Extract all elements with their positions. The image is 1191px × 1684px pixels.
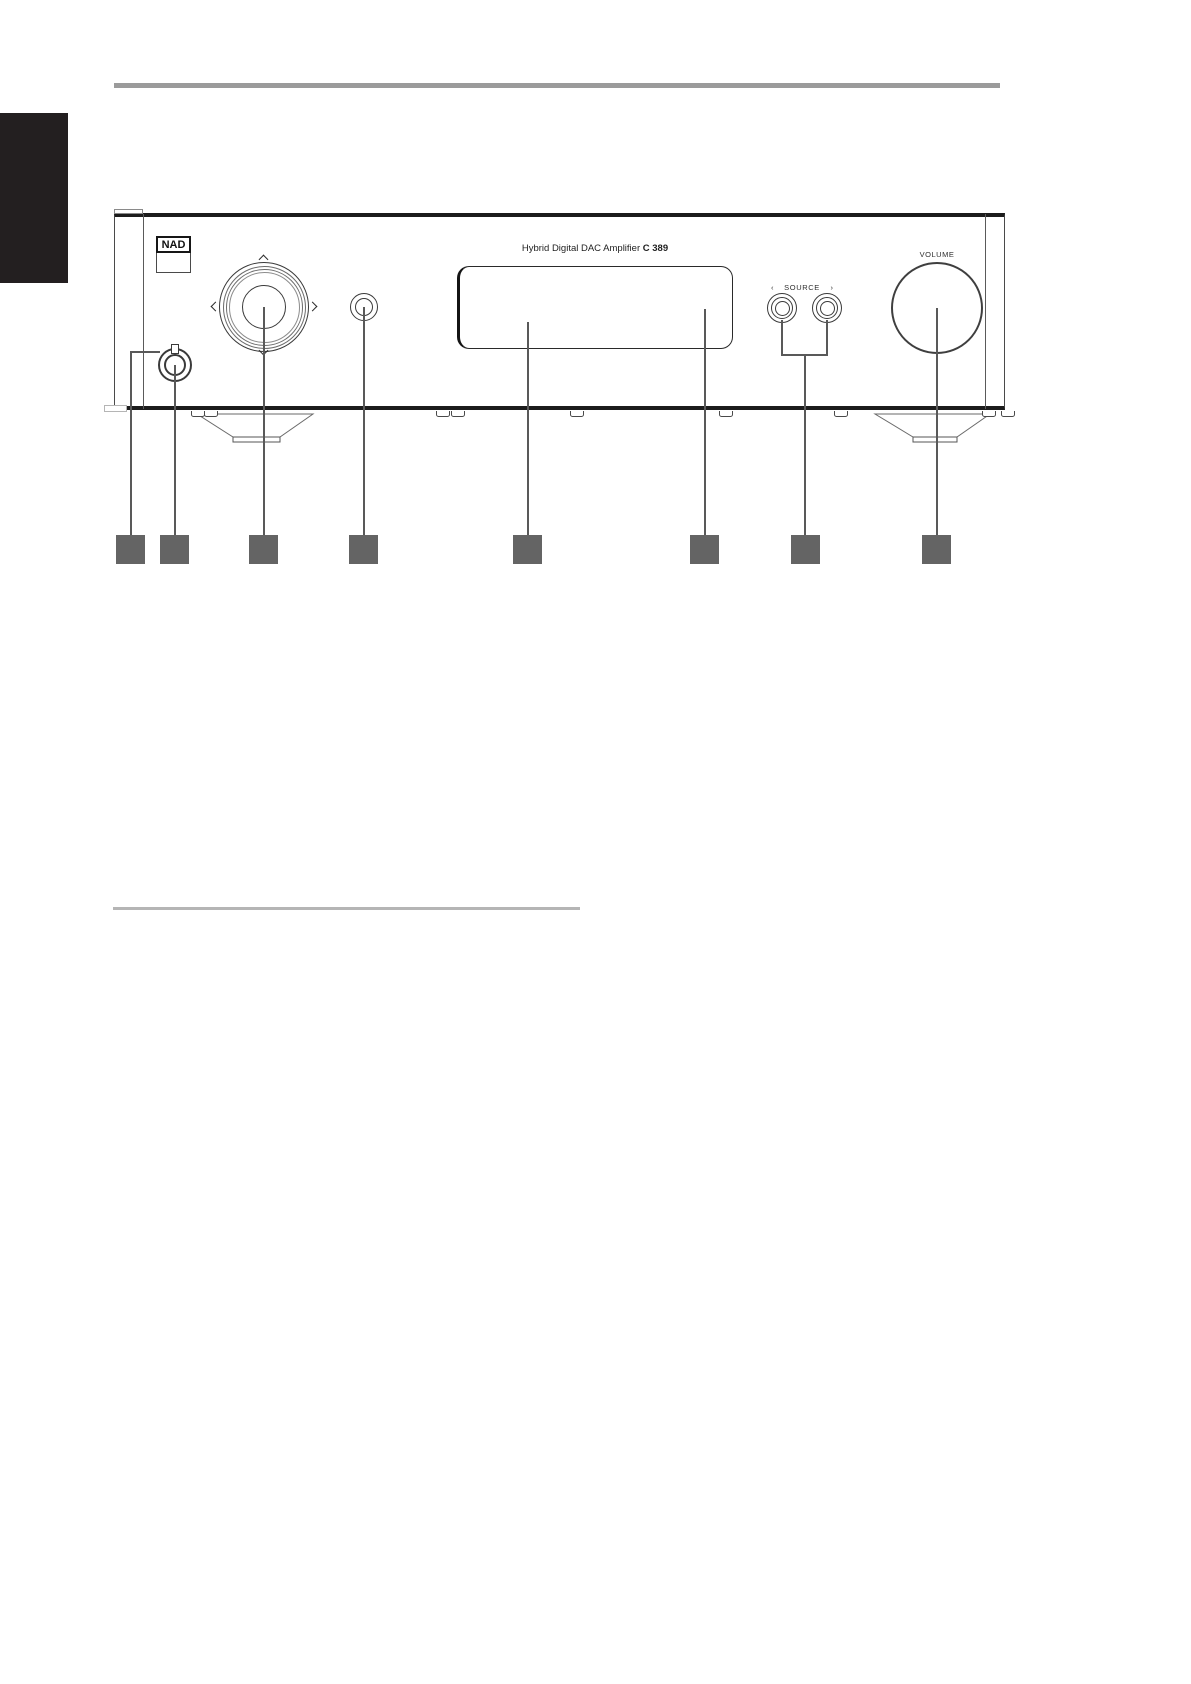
left-foot-pad [233, 437, 280, 442]
chapter-edge-tab [0, 113, 68, 283]
section-divider [113, 907, 580, 910]
volume-label: VOLUME [892, 250, 982, 259]
top-rule [114, 83, 1000, 88]
source-next-icon: › [831, 283, 834, 292]
chassis-top-left-step [114, 209, 143, 214]
source-label-row: ‹ SOURCE › [771, 283, 833, 292]
left-foot [197, 414, 313, 437]
model-title-bold: C 389 [643, 243, 668, 254]
callout-line-5 [527, 322, 529, 535]
right-foot-pad [913, 437, 957, 442]
callout-box-6 [690, 535, 719, 564]
callout-box-3 [249, 535, 278, 564]
chassis-feet [100, 411, 1020, 445]
callout-line-7 [804, 355, 806, 535]
callout-line-2 [174, 365, 176, 535]
callout-line-1-horizontal [131, 351, 160, 353]
callout-line-4 [363, 307, 365, 535]
callout-line-6 [704, 309, 706, 535]
standby-led-indicator [171, 344, 179, 354]
chassis-right-seam [985, 214, 986, 409]
brand-logo: NAD [156, 236, 191, 253]
callout-box-8 [922, 535, 951, 564]
callout-line-7-right [826, 320, 828, 356]
source-next-ring-inner [820, 301, 835, 316]
source-label: SOURCE [784, 283, 820, 292]
manual-page: NAD Hybrid Digital DAC Amplifier [0, 0, 1191, 1684]
chassis-left-seam [143, 214, 144, 409]
callout-box-5 [513, 535, 542, 564]
callout-box-7 [791, 535, 820, 564]
callout-box-2 [160, 535, 189, 564]
right-foot [875, 414, 990, 437]
source-prev-icon: ‹ [771, 283, 774, 292]
callout-line-8 [936, 308, 938, 535]
model-title-regular: Hybrid Digital DAC Amplifier [522, 243, 640, 254]
callout-box-1 [116, 535, 145, 564]
callout-box-4 [349, 535, 378, 564]
callout-line-3 [263, 307, 265, 535]
source-prev-ring-inner [775, 301, 790, 316]
model-title: Hybrid Digital DAC Amplifier C 389 [457, 243, 733, 254]
callout-line-7-left [781, 320, 783, 356]
front-display [457, 266, 733, 349]
callout-line-1 [130, 351, 132, 535]
